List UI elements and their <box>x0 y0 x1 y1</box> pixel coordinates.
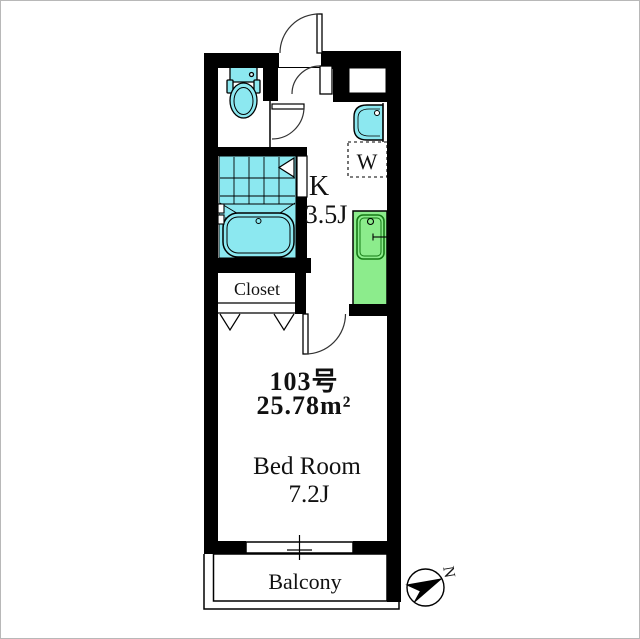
entrance-door <box>280 14 322 53</box>
wall-closet-right <box>295 273 306 314</box>
label-bedroom: Bed Room <box>253 453 361 480</box>
pipe-space-niche <box>349 68 386 93</box>
toilet-door <box>272 104 304 139</box>
kitchen-sink-icon <box>357 215 387 259</box>
label-washer: W <box>357 149 378 174</box>
wall-bath-top <box>204 147 307 156</box>
label-unit-area: 25.78m² <box>257 391 352 420</box>
floor-plan-image: N K 3.5J W Closet 103号 25.78m² Bed Room … <box>0 0 640 639</box>
toilet-icon <box>227 67 260 118</box>
washbasin-icon <box>354 103 383 142</box>
bedroom-door <box>303 314 346 354</box>
wall-left <box>204 53 218 554</box>
closet-door <box>218 303 295 330</box>
wall-bedroom-bottom-left <box>204 541 246 554</box>
entrance-door-arc <box>280 14 319 53</box>
wall-bath-bottom <box>204 258 311 273</box>
compass: N <box>407 565 458 606</box>
label-kitchen: K <box>309 171 329 202</box>
bathtub-icon <box>223 213 294 257</box>
label-bedroom-size: 7.2J <box>289 481 330 508</box>
bathroom-door <box>297 156 307 197</box>
floor-plan-svg: N K 3.5J W Closet 103号 25.78m² Bed Room … <box>1 1 640 639</box>
label-kitchen-size: 3.5J <box>305 200 348 229</box>
kitchen-counter <box>353 211 387 306</box>
label-balcony: Balcony <box>268 569 341 594</box>
wall-kitchen-bedroom <box>349 304 401 316</box>
bedroom-window <box>246 535 353 560</box>
wall-right <box>387 51 401 602</box>
wall-toilet-right <box>263 53 278 101</box>
label-closet: Closet <box>234 279 280 299</box>
compass-north-label: N <box>439 565 458 580</box>
washroom-door <box>292 66 332 94</box>
bathroom-area <box>218 156 296 258</box>
wall-bedroom-bottom-right <box>353 541 401 554</box>
